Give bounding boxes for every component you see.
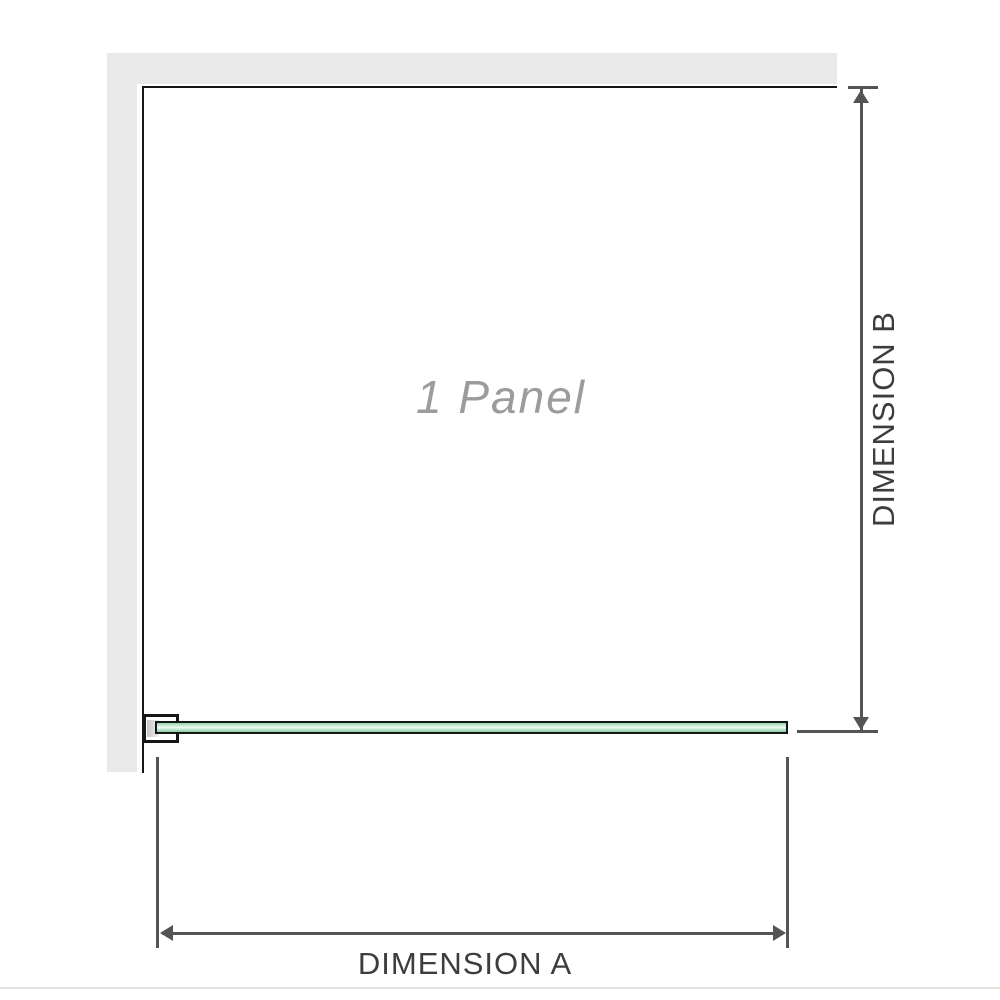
arrow-left-icon [160,925,173,941]
dimension-b-tick-top [848,86,878,89]
wall-left [107,53,137,772]
dimension-a-extension-right [786,757,789,948]
shower-panel-diagram: 1 Panel DIMENSION B DIMENSION A [0,0,1000,1000]
dimension-a-line [162,932,783,935]
panel-count-label: 1 Panel [416,370,586,424]
dimension-b-label: DIMENSION B [866,311,902,527]
page-bottom-divider [0,987,1000,989]
wall-top [107,53,837,84]
panel-outline-left [142,86,144,773]
dimension-b-tick-bottom [797,730,878,733]
panel-outline-top [142,86,837,88]
arrow-right-icon [773,925,786,941]
dimension-b-line [860,88,863,731]
arrow-down-icon [853,717,869,730]
arrow-up-icon [853,90,869,103]
glass-panel [155,721,788,734]
dimension-a-extension-left [156,757,159,948]
dimension-a-label: DIMENSION A [358,946,572,982]
